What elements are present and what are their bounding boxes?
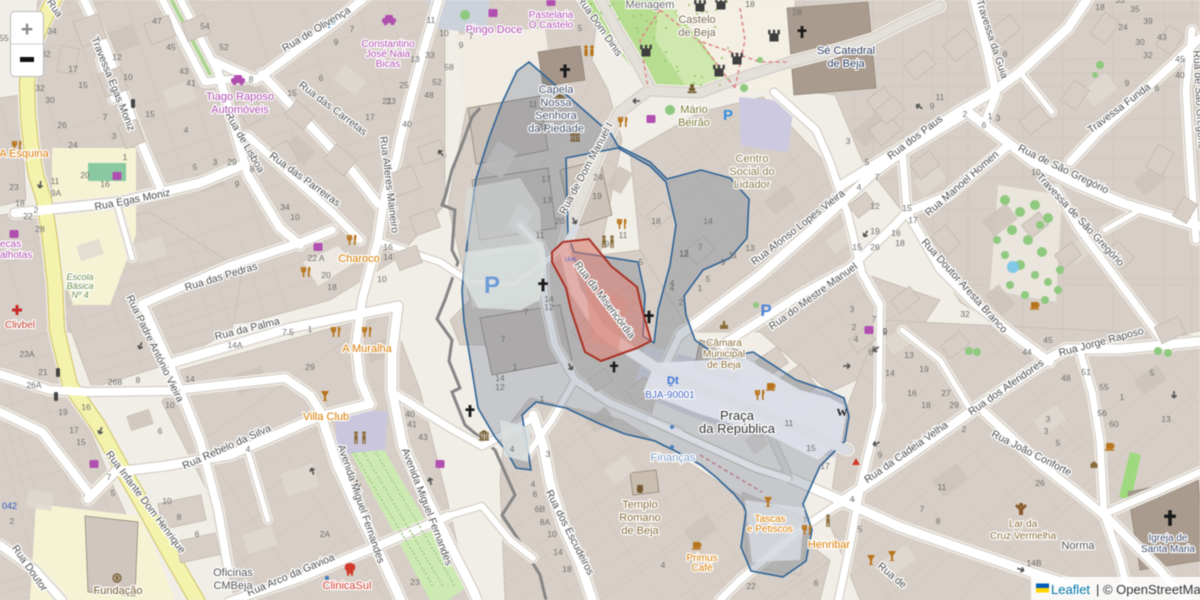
svg-text:4: 4 <box>246 444 251 454</box>
svg-text:30: 30 <box>1135 37 1145 47</box>
svg-text:11: 11 <box>938 482 947 492</box>
svg-text:Lar da: Lar da <box>1009 519 1038 530</box>
svg-text:D̯t: D̯t <box>667 375 679 387</box>
svg-text:1: 1 <box>540 394 545 404</box>
svg-text:19: 19 <box>919 364 929 374</box>
svg-text:26: 26 <box>1035 478 1045 488</box>
svg-text:8: 8 <box>136 375 141 385</box>
svg-text:7: 7 <box>501 334 506 344</box>
svg-text:Nº 4: Nº 4 <box>71 290 88 300</box>
svg-text:7: 7 <box>103 112 108 122</box>
svg-text:14B: 14B <box>1026 558 1041 568</box>
svg-text:20: 20 <box>555 216 565 226</box>
svg-text:3: 3 <box>1044 426 1049 436</box>
svg-text:Bicas: Bicas <box>376 59 400 70</box>
svg-text:12: 12 <box>870 201 880 211</box>
svg-text:Fundação: Fundação <box>94 585 143 597</box>
svg-text:Automóveis: Automóveis <box>211 104 269 116</box>
svg-text:28: 28 <box>792 7 802 17</box>
svg-text:5: 5 <box>865 157 870 167</box>
svg-text:34: 34 <box>47 26 57 36</box>
svg-text:| © OpenStreetMap: | © OpenStreetMap <box>1096 582 1200 597</box>
svg-text:LEAL: LEAL <box>565 257 577 263</box>
svg-text:14: 14 <box>185 374 195 384</box>
svg-text:17: 17 <box>541 174 551 184</box>
svg-text:30: 30 <box>45 95 55 105</box>
svg-text:9A: 9A <box>51 188 62 198</box>
svg-text:17: 17 <box>820 461 830 471</box>
svg-text:Nossa: Nossa <box>540 97 572 109</box>
svg-text:9: 9 <box>930 101 935 111</box>
svg-text:e Petiscos: e Petiscos <box>747 524 793 535</box>
svg-text:5: 5 <box>1056 438 1061 448</box>
svg-text:29: 29 <box>949 400 959 410</box>
svg-text:44: 44 <box>1022 347 1032 357</box>
svg-text:20: 20 <box>537 122 547 132</box>
svg-text:22 A: 22 A <box>307 253 324 263</box>
svg-text:8A: 8A <box>540 517 551 527</box>
svg-text:7: 7 <box>469 31 474 41</box>
svg-text:3: 3 <box>546 449 551 459</box>
svg-text:1: 1 <box>1120 392 1125 402</box>
svg-text:P: P <box>723 107 733 124</box>
svg-text:18: 18 <box>895 238 905 248</box>
svg-text:de Beja: de Beja <box>827 58 865 70</box>
svg-text:Municipal: Municipal <box>703 349 745 360</box>
svg-text:13: 13 <box>745 243 755 253</box>
svg-text:1: 1 <box>123 152 128 162</box>
svg-text:042: 042 <box>2 501 17 511</box>
svg-text:9: 9 <box>721 257 726 267</box>
svg-text:14: 14 <box>383 252 393 262</box>
svg-text:6: 6 <box>814 578 819 588</box>
svg-text:29: 29 <box>305 362 315 372</box>
svg-text:alhotas: alhotas <box>0 250 32 261</box>
svg-text:6: 6 <box>982 120 987 130</box>
svg-text:2A: 2A <box>320 529 331 539</box>
svg-text:23A: 23A <box>19 349 34 359</box>
svg-text:Finanças: Finanças <box>651 452 696 464</box>
svg-text:9: 9 <box>1125 78 1130 88</box>
svg-text:4: 4 <box>670 283 675 293</box>
svg-text:33: 33 <box>425 50 435 60</box>
svg-text:CMBeja: CMBeja <box>213 580 253 592</box>
svg-text:23: 23 <box>9 182 19 192</box>
svg-text:13: 13 <box>904 350 914 360</box>
svg-text:8: 8 <box>249 74 254 84</box>
svg-text:W: W <box>837 407 848 419</box>
svg-text:14A: 14A <box>227 340 242 350</box>
svg-text:3: 3 <box>846 136 851 146</box>
svg-text:1: 1 <box>698 283 703 293</box>
svg-text:10: 10 <box>377 274 387 284</box>
svg-text:2: 2 <box>34 205 39 215</box>
svg-text:13: 13 <box>542 195 552 205</box>
svg-text:40: 40 <box>1175 70 1185 80</box>
svg-text:4: 4 <box>510 444 515 454</box>
svg-text:45: 45 <box>166 42 176 52</box>
svg-text:2: 2 <box>963 109 968 119</box>
svg-text:12: 12 <box>495 382 505 392</box>
svg-text:41: 41 <box>186 78 196 88</box>
svg-text:18: 18 <box>651 216 661 226</box>
svg-text:7: 7 <box>875 172 880 182</box>
svg-text:23: 23 <box>386 96 396 106</box>
svg-text:7: 7 <box>350 24 355 34</box>
svg-text:5: 5 <box>193 162 198 172</box>
svg-text:15: 15 <box>806 443 816 453</box>
svg-text:12: 12 <box>112 52 122 62</box>
svg-text:10: 10 <box>439 28 449 38</box>
svg-text:26A: 26A <box>26 380 41 390</box>
svg-text:5: 5 <box>578 23 583 33</box>
svg-text:Capela: Capela <box>539 84 575 96</box>
svg-text:52: 52 <box>219 42 229 52</box>
svg-text:9: 9 <box>235 179 240 189</box>
svg-text:9: 9 <box>459 40 464 50</box>
svg-text:35: 35 <box>1130 4 1140 14</box>
svg-text:10: 10 <box>123 72 133 82</box>
svg-text:Café: Café <box>691 563 713 574</box>
svg-text:33: 33 <box>1115 0 1125 5</box>
svg-text:Câmara: Câmara <box>706 338 742 349</box>
svg-text:51: 51 <box>1081 367 1091 377</box>
svg-text:Henribar: Henribar <box>808 539 851 551</box>
svg-text:10: 10 <box>290 212 300 222</box>
svg-text:9: 9 <box>878 450 883 460</box>
svg-text:3: 3 <box>112 131 117 141</box>
svg-text:22: 22 <box>23 211 33 221</box>
svg-text:15: 15 <box>78 80 88 90</box>
svg-text:BJA-90001: BJA-90001 <box>645 390 695 401</box>
svg-text:Menagem: Menagem <box>626 0 675 11</box>
svg-text:26: 26 <box>870 242 880 252</box>
svg-text:ClinicaSul: ClinicaSul <box>323 580 372 592</box>
svg-text:48: 48 <box>424 90 434 100</box>
svg-text:24: 24 <box>1118 22 1128 32</box>
svg-text:11: 11 <box>785 418 794 428</box>
svg-text:2: 2 <box>679 297 684 307</box>
svg-text:5: 5 <box>706 274 711 284</box>
svg-text:40: 40 <box>402 119 412 129</box>
svg-text:3: 3 <box>850 304 855 314</box>
svg-text:56: 56 <box>1097 408 1107 418</box>
svg-text:Clivbel: Clivbel <box>5 320 35 331</box>
svg-text:2: 2 <box>852 322 857 332</box>
svg-text:1: 1 <box>308 324 313 334</box>
svg-text:Leaflet: Leaflet <box>1051 582 1090 597</box>
svg-text:Castelo: Castelo <box>678 14 715 26</box>
svg-text:15: 15 <box>902 203 912 213</box>
svg-text:Pingo Doce: Pingo Doce <box>466 24 523 36</box>
svg-text:14: 14 <box>703 216 713 226</box>
svg-text:58: 58 <box>444 62 454 72</box>
svg-text:15: 15 <box>76 437 86 447</box>
svg-text:18: 18 <box>15 198 25 208</box>
svg-text:11: 11 <box>619 230 628 240</box>
svg-text:16: 16 <box>81 402 91 412</box>
svg-text:6B: 6B <box>535 504 546 514</box>
svg-text:15: 15 <box>287 88 297 98</box>
svg-text:P: P <box>484 272 500 299</box>
svg-text:8: 8 <box>250 164 255 174</box>
svg-text:27: 27 <box>941 388 951 398</box>
svg-text:11: 11 <box>51 176 60 186</box>
svg-text:19: 19 <box>58 407 68 417</box>
svg-text:16: 16 <box>100 179 110 189</box>
svg-text:22: 22 <box>746 581 756 591</box>
svg-text:Villa Club: Villa Club <box>303 411 349 423</box>
svg-text:8: 8 <box>872 344 877 354</box>
svg-text:39: 39 <box>1143 16 1153 26</box>
svg-text:19: 19 <box>592 191 602 201</box>
svg-text:18: 18 <box>562 564 572 574</box>
svg-text:14: 14 <box>544 294 554 304</box>
svg-text:52: 52 <box>432 77 442 87</box>
svg-text:268: 268 <box>108 377 122 387</box>
svg-text:Cruz Vermelha: Cruz Vermelha <box>990 531 1057 542</box>
svg-text:11: 11 <box>536 230 545 240</box>
svg-text:de Beja: de Beja <box>707 360 741 371</box>
svg-text:18: 18 <box>327 282 337 292</box>
svg-text:32: 32 <box>960 309 970 319</box>
svg-text:21: 21 <box>38 367 48 377</box>
svg-text:2: 2 <box>10 516 15 526</box>
svg-text:47: 47 <box>152 16 162 26</box>
svg-text:7: 7 <box>107 472 112 482</box>
svg-text:4: 4 <box>854 334 859 344</box>
svg-text:32: 32 <box>35 83 45 93</box>
svg-text:14: 14 <box>885 368 895 378</box>
svg-text:1: 1 <box>988 111 993 121</box>
svg-text:5: 5 <box>1150 368 1155 378</box>
svg-text:Senhora: Senhora <box>535 110 577 122</box>
svg-text:+: + <box>21 18 33 41</box>
svg-text:19: 19 <box>870 226 880 236</box>
svg-text:Social do: Social do <box>729 166 774 178</box>
svg-text:6: 6 <box>319 73 324 83</box>
svg-text:16: 16 <box>907 388 917 398</box>
svg-text:54: 54 <box>200 21 210 31</box>
svg-text:Centro: Centro <box>735 153 768 165</box>
svg-text:11: 11 <box>427 15 436 25</box>
svg-text:de Beja: de Beja <box>621 525 659 537</box>
svg-text:7: 7 <box>920 504 925 514</box>
svg-text:32: 32 <box>1143 50 1153 60</box>
svg-text:18: 18 <box>1095 2 1105 12</box>
svg-text:20: 20 <box>80 170 90 180</box>
svg-text:43: 43 <box>1157 32 1167 42</box>
svg-text:4: 4 <box>184 125 189 135</box>
svg-text:de Beja: de Beja <box>678 27 716 39</box>
svg-text:Romano: Romano <box>619 512 661 524</box>
svg-text:11: 11 <box>936 92 945 102</box>
svg-text:20: 20 <box>321 270 331 280</box>
svg-text:24: 24 <box>593 172 603 182</box>
svg-text:43: 43 <box>179 66 189 76</box>
svg-text:10: 10 <box>165 400 175 410</box>
svg-text:da República: da República <box>699 421 776 436</box>
svg-text:3: 3 <box>1046 414 1051 424</box>
svg-text:17: 17 <box>68 64 78 74</box>
svg-text:15: 15 <box>145 109 155 119</box>
svg-text:7.5: 7.5 <box>282 327 294 337</box>
svg-text:12: 12 <box>679 249 689 259</box>
svg-text:5: 5 <box>858 524 863 534</box>
svg-text:9: 9 <box>883 327 888 337</box>
svg-text:10: 10 <box>547 529 557 539</box>
svg-text:45: 45 <box>1175 54 1185 64</box>
svg-text:Santa Maria: Santa Maria <box>1141 544 1195 555</box>
svg-text:11: 11 <box>729 250 738 260</box>
svg-text:9: 9 <box>605 239 610 249</box>
svg-text:4: 4 <box>531 479 536 489</box>
svg-text:Charoco: Charoco <box>338 253 380 265</box>
svg-text:26: 26 <box>57 120 67 130</box>
svg-text:Igreja de: Igreja de <box>1149 533 1188 544</box>
svg-text:10: 10 <box>162 496 172 506</box>
svg-text:15: 15 <box>852 242 862 252</box>
svg-text:4: 4 <box>857 182 862 192</box>
svg-text:3: 3 <box>996 113 1001 123</box>
svg-text:18: 18 <box>921 400 931 410</box>
svg-text:Oficinas: Oficinas <box>213 567 253 579</box>
svg-text:41: 41 <box>407 419 417 429</box>
svg-text:5: 5 <box>639 257 644 267</box>
svg-text:7: 7 <box>698 242 703 252</box>
svg-text:6: 6 <box>533 489 538 499</box>
svg-text:4: 4 <box>850 494 855 504</box>
svg-text:8: 8 <box>1003 49 1008 59</box>
svg-text:16: 16 <box>383 242 393 252</box>
svg-text:4: 4 <box>661 560 666 570</box>
svg-text:2: 2 <box>962 424 967 434</box>
svg-text:A Muralha: A Muralha <box>342 343 392 355</box>
svg-text:9: 9 <box>334 37 339 47</box>
svg-text:13: 13 <box>1161 414 1171 424</box>
svg-text:28: 28 <box>35 224 45 234</box>
svg-text:Tiago Raposo: Tiago Raposo <box>206 91 274 103</box>
svg-text:14: 14 <box>553 547 563 557</box>
svg-text:5: 5 <box>111 488 116 498</box>
svg-text:7: 7 <box>524 307 529 317</box>
svg-text:A Esquina: A Esquina <box>0 148 50 160</box>
svg-text:18: 18 <box>745 0 755 9</box>
svg-text:29: 29 <box>227 157 237 167</box>
svg-text:23: 23 <box>410 577 420 587</box>
svg-text:13: 13 <box>410 54 420 64</box>
svg-text:34: 34 <box>280 202 290 212</box>
svg-text:25: 25 <box>399 80 409 90</box>
svg-text:Sé Catedral: Sé Catedral <box>817 45 875 57</box>
svg-text:ecas: ecas <box>0 239 21 250</box>
svg-text:P: P <box>760 301 771 320</box>
svg-text:6: 6 <box>158 426 163 436</box>
svg-text:17: 17 <box>365 112 375 122</box>
svg-text:45: 45 <box>1043 335 1053 345</box>
svg-text:Ó Castelo: Ó Castelo <box>529 18 574 31</box>
svg-text:55: 55 <box>0 33 9 43</box>
svg-text:Lidador: Lidador <box>734 179 771 191</box>
svg-text:55: 55 <box>1099 382 1109 392</box>
svg-text:8: 8 <box>177 512 182 522</box>
svg-text:11: 11 <box>529 99 538 109</box>
svg-text:10: 10 <box>1031 167 1041 177</box>
svg-text:16: 16 <box>891 228 901 238</box>
svg-text:Norma: Norma <box>1061 540 1095 552</box>
svg-text:6: 6 <box>1155 83 1160 93</box>
svg-text:40: 40 <box>405 409 415 419</box>
svg-text:6: 6 <box>195 529 200 539</box>
svg-text:60: 60 <box>1109 419 1119 429</box>
svg-text:8: 8 <box>936 516 941 526</box>
svg-text:Beirão: Beirão <box>678 117 710 129</box>
svg-text:7: 7 <box>872 314 877 324</box>
svg-text:17: 17 <box>908 215 918 225</box>
svg-text:3: 3 <box>213 157 218 167</box>
svg-text:Mário: Mário <box>680 104 708 116</box>
svg-text:48: 48 <box>1061 373 1071 383</box>
svg-text:43: 43 <box>418 432 428 442</box>
svg-text:1: 1 <box>513 362 518 372</box>
svg-text:Templo: Templo <box>622 499 657 511</box>
svg-text:24: 24 <box>68 140 78 150</box>
svg-text:17: 17 <box>69 425 79 435</box>
